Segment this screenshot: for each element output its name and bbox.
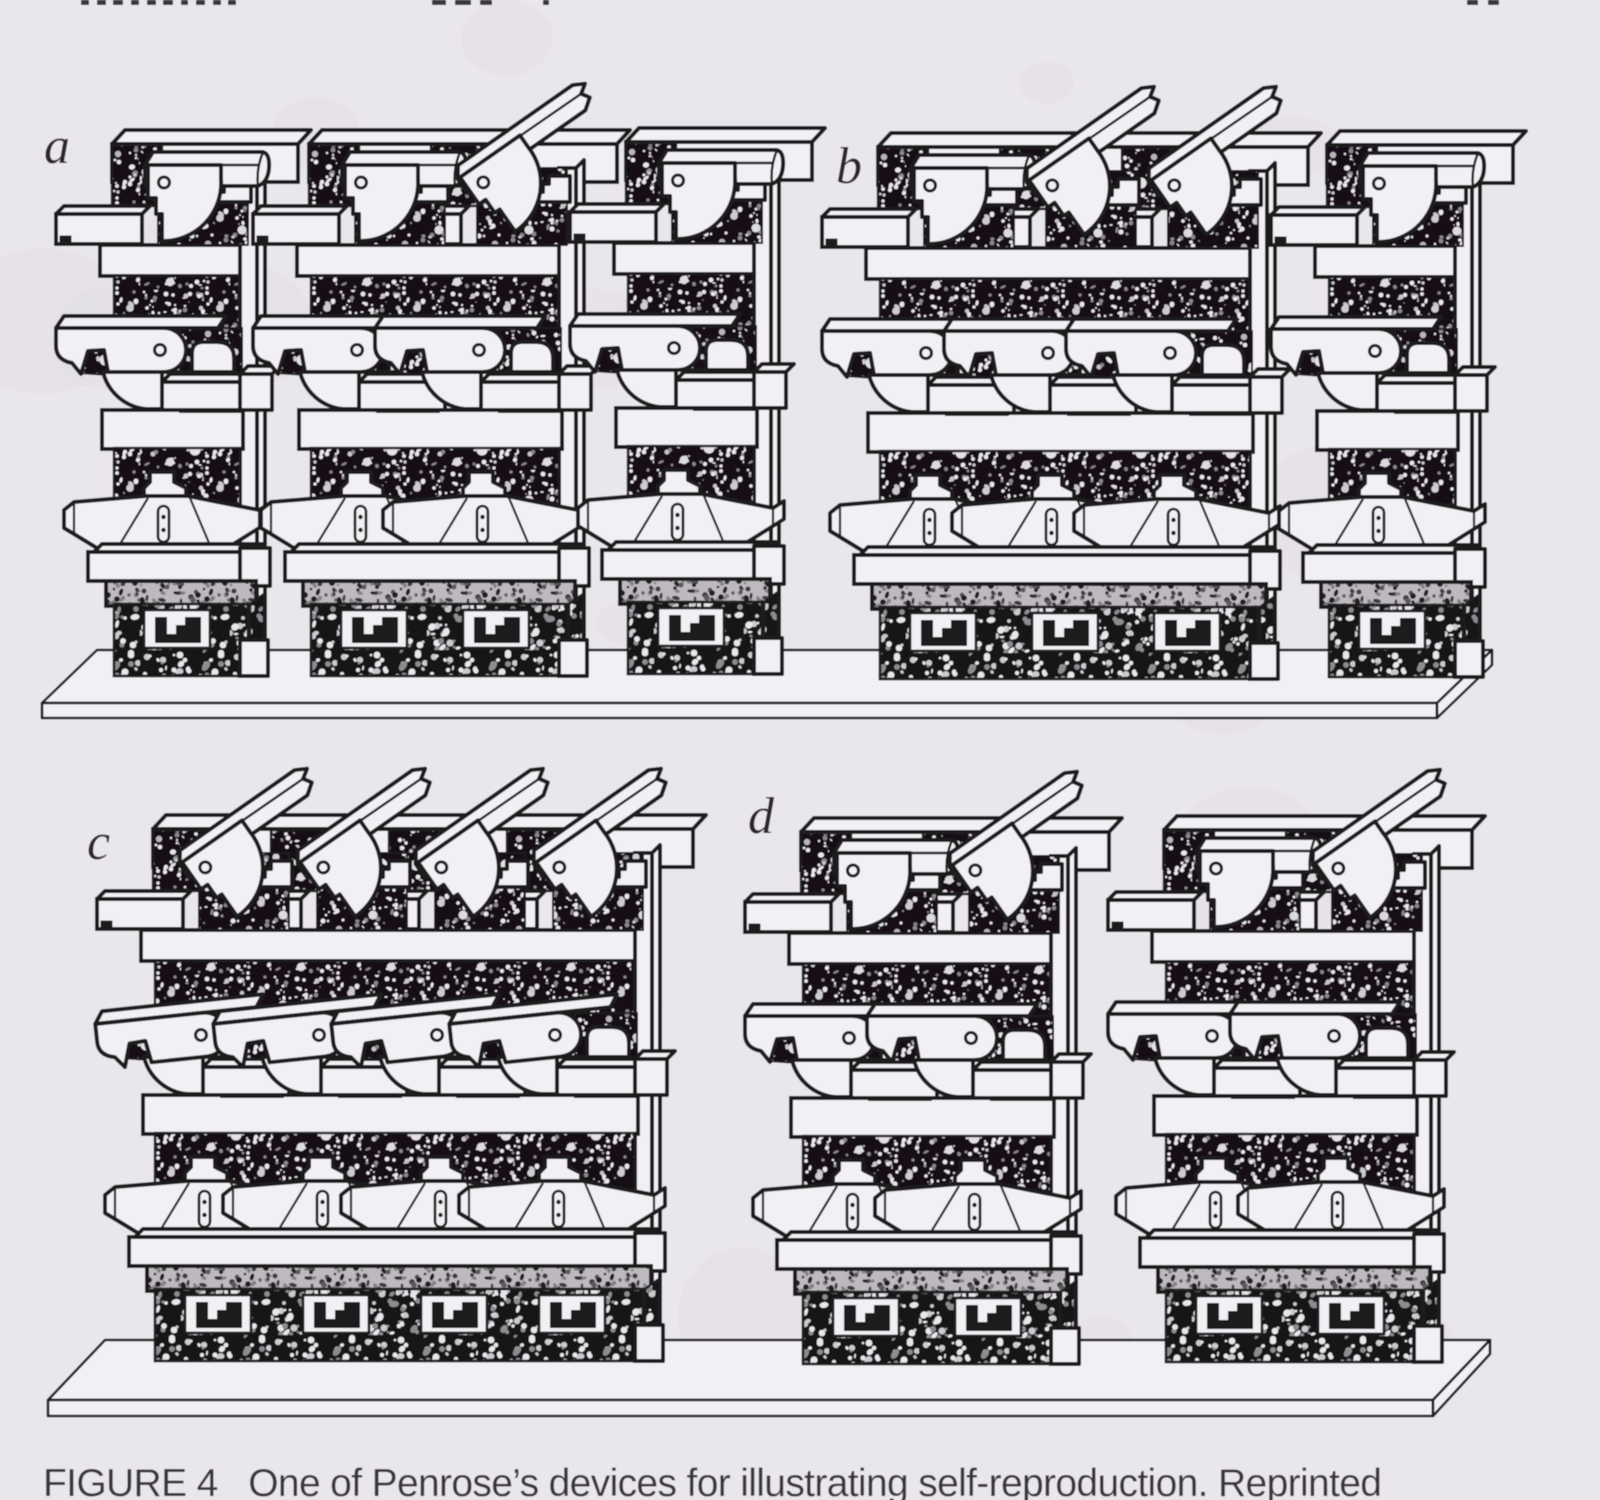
svg-text:FIGURE 4 One of Penrose’s de: FIGURE 4 One of Penrose’s devices for il… [43,1462,1381,1500]
svg-text:d: d [748,788,775,845]
svg-text:b: b [836,138,862,195]
svg-text:a: a [44,118,70,175]
svg-text:c: c [87,814,110,871]
